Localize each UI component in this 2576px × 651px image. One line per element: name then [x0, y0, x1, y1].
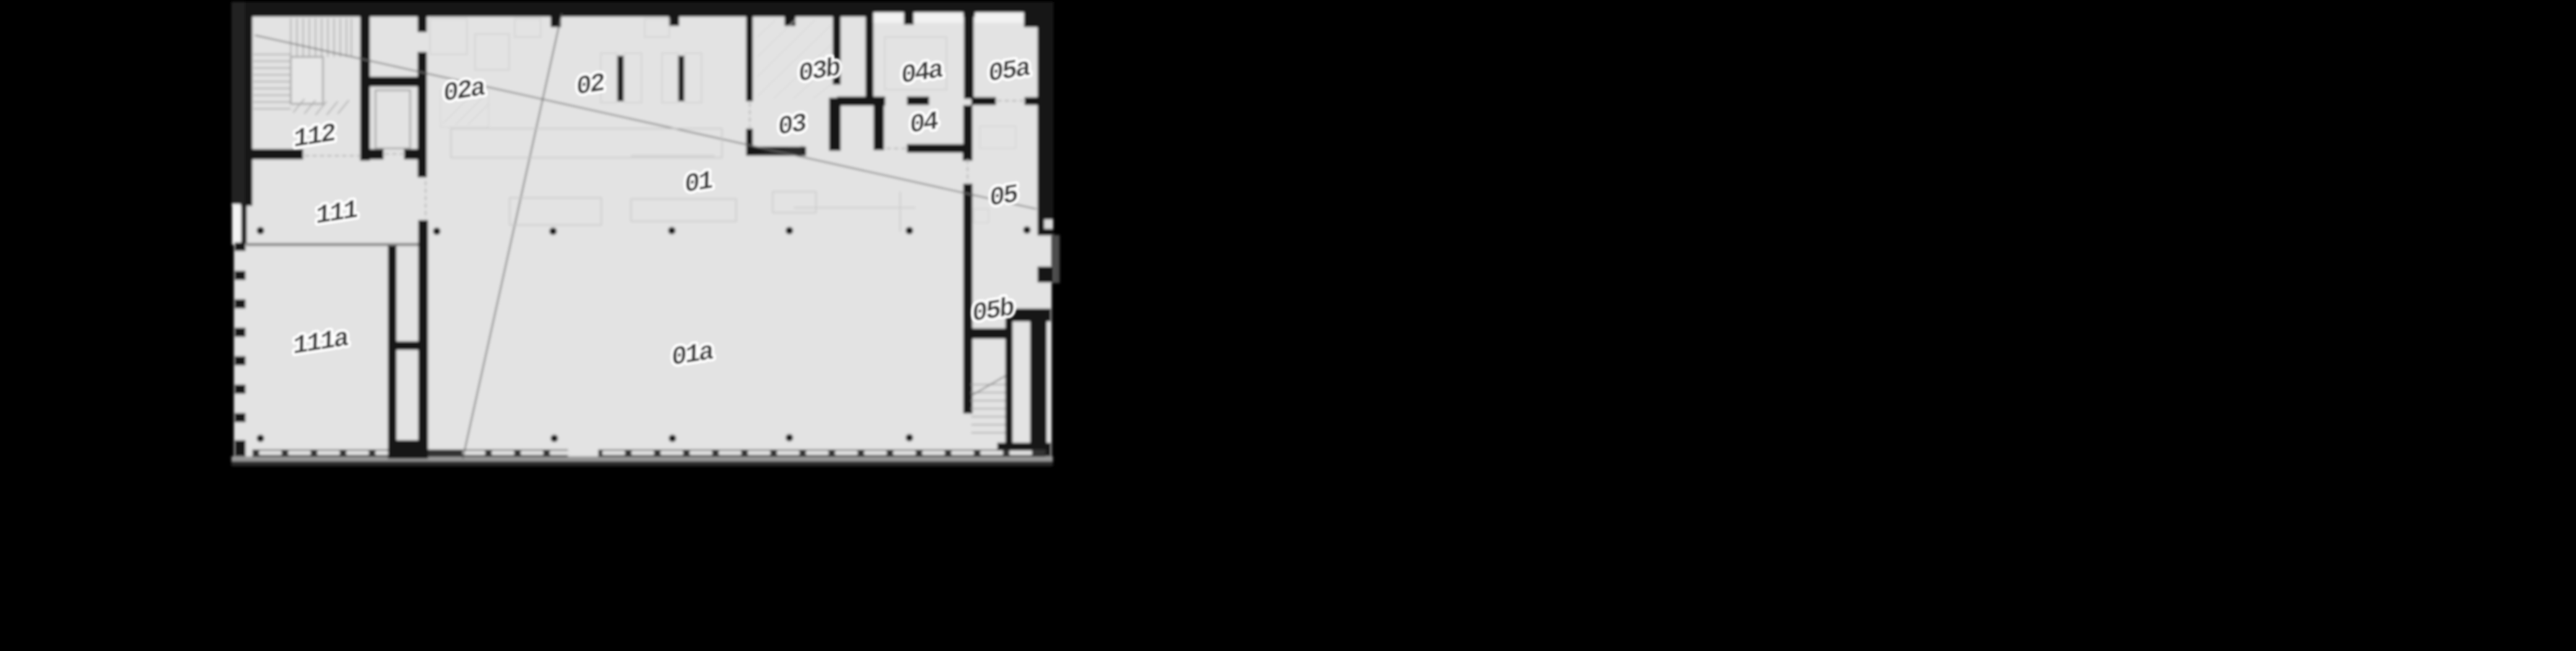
- svg-text:01: 01: [682, 166, 715, 200]
